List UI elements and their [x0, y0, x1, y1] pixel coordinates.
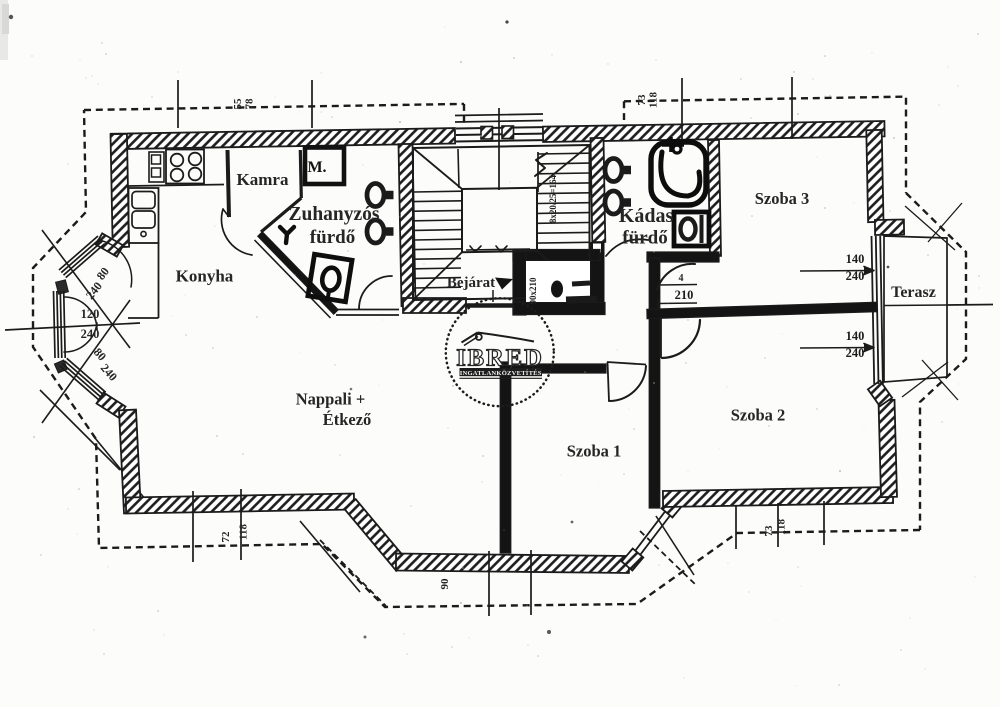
- svg-text:240: 240: [81, 327, 100, 341]
- svg-text:72: 72: [220, 531, 232, 543]
- svg-text:240: 240: [846, 269, 865, 283]
- svg-text:Kádas: Kádas: [619, 205, 674, 227]
- svg-text:Kamra: Kamra: [237, 170, 289, 189]
- svg-text:4: 4: [679, 273, 684, 284]
- svg-text:IBRED: IBRED: [456, 345, 544, 372]
- svg-text:8x20/25=164: 8x20/25=164: [548, 174, 558, 223]
- svg-text:Zuhanyzós: Zuhanyzós: [288, 204, 379, 225]
- svg-text:118: 118: [648, 92, 660, 108]
- svg-text:78: 78: [244, 98, 256, 110]
- svg-text:90: 90: [439, 578, 451, 590]
- svg-text:fürdő: fürdő: [310, 227, 355, 248]
- svg-text:118: 118: [776, 519, 788, 535]
- svg-text:Étkező: Étkező: [323, 410, 372, 429]
- svg-text:120: 120: [81, 307, 100, 321]
- svg-text:90x210: 90x210: [528, 277, 538, 305]
- svg-text:M.: M.: [307, 159, 326, 176]
- svg-text:fürdő: fürdő: [622, 228, 667, 249]
- svg-text:Nappali +: Nappali +: [296, 390, 365, 409]
- svg-text:Szoba 3: Szoba 3: [755, 189, 810, 208]
- svg-text:240: 240: [846, 346, 865, 360]
- svg-text:Bejárat: Bejárat: [447, 275, 495, 291]
- svg-text:73: 73: [763, 525, 775, 537]
- svg-text:140: 140: [846, 252, 865, 266]
- svg-text:Szoba 1: Szoba 1: [567, 442, 622, 461]
- svg-text:Terasz: Terasz: [891, 284, 936, 301]
- svg-text:Szoba 2: Szoba 2: [731, 406, 786, 425]
- svg-text:118: 118: [238, 524, 250, 540]
- svg-text:140: 140: [846, 329, 865, 343]
- svg-text:55: 55: [232, 98, 244, 110]
- svg-text:Konyha: Konyha: [176, 267, 234, 286]
- svg-text:210: 210: [675, 288, 694, 302]
- svg-text:INGATLANKÖZVETÍTÉS: INGATLANKÖZVETÍTÉS: [460, 369, 542, 377]
- svg-text:73: 73: [636, 94, 648, 106]
